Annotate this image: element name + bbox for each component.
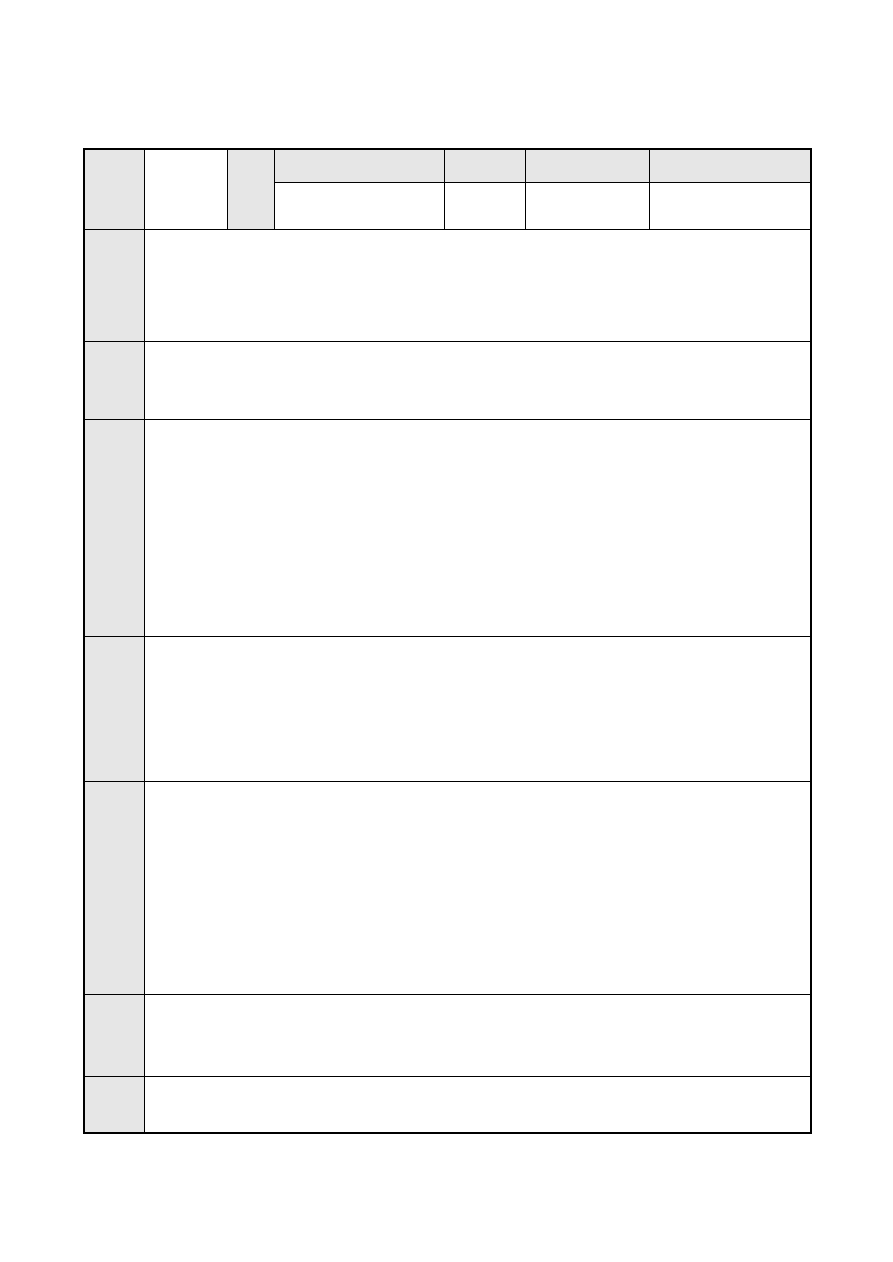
row-label-cell	[84, 229, 144, 341]
table-row	[84, 994, 811, 1076]
row-label-cell	[84, 994, 144, 1076]
row-label-cell	[84, 341, 144, 419]
document-page	[0, 0, 893, 1262]
header-group-cell-1	[274, 149, 444, 182]
header-row-top	[84, 149, 811, 182]
row-content-cell	[144, 1076, 811, 1133]
row-label-cell	[84, 419, 144, 636]
row-label-cell	[84, 781, 144, 994]
row-content-cell	[144, 419, 811, 636]
table-row	[84, 419, 811, 636]
table-row	[84, 781, 811, 994]
header-sub-cell-4	[649, 182, 811, 229]
header-label-column-cell	[84, 149, 144, 229]
header-sub-cell-2	[444, 182, 525, 229]
header-group-cell-2	[444, 149, 525, 182]
header-col2-cell	[144, 149, 227, 229]
header-group-cell-3	[525, 149, 649, 182]
table-row	[84, 341, 811, 419]
row-content-cell	[144, 229, 811, 341]
table-row	[84, 1076, 811, 1133]
header-col3-cell	[227, 149, 274, 229]
table-row	[84, 229, 811, 341]
header-group-cell-4	[649, 149, 811, 182]
row-content-cell	[144, 636, 811, 781]
row-label-cell	[84, 636, 144, 781]
row-content-cell	[144, 781, 811, 994]
table-row	[84, 636, 811, 781]
header-sub-cell-3	[525, 182, 649, 229]
blank-form-table	[83, 148, 812, 1134]
row-label-cell	[84, 1076, 144, 1133]
row-content-cell	[144, 994, 811, 1076]
row-content-cell	[144, 341, 811, 419]
header-sub-cell-1	[274, 182, 444, 229]
